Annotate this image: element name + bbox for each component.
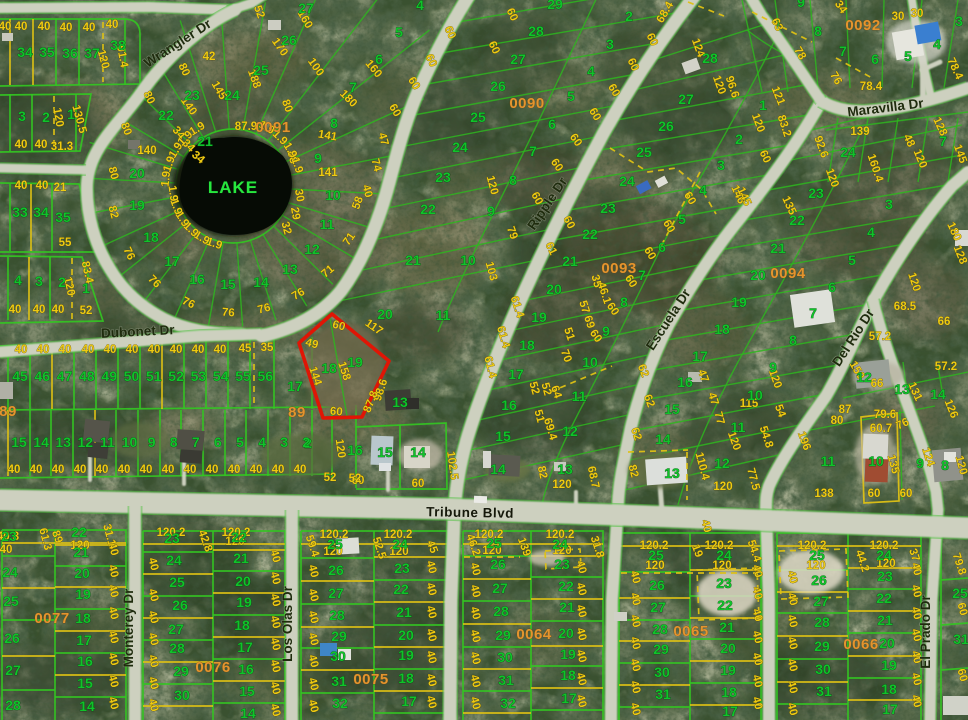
- svg-text:30: 30: [892, 11, 905, 23]
- svg-text:22: 22: [158, 107, 174, 123]
- svg-text:28: 28: [493, 603, 509, 619]
- svg-text:22: 22: [393, 581, 409, 597]
- svg-text:23: 23: [716, 575, 732, 591]
- svg-text:40: 40: [184, 464, 197, 476]
- svg-text:19: 19: [129, 197, 145, 213]
- svg-text:29: 29: [547, 0, 563, 12]
- svg-text:138: 138: [814, 488, 834, 500]
- svg-text:40: 40: [140, 464, 153, 476]
- svg-text:25: 25: [169, 574, 185, 590]
- svg-text:27: 27: [813, 593, 829, 609]
- svg-text:24: 24: [716, 547, 732, 563]
- svg-text:40: 40: [170, 344, 183, 356]
- svg-text:5: 5: [567, 88, 575, 104]
- svg-text:7: 7: [939, 133, 947, 149]
- svg-text:27: 27: [5, 662, 21, 678]
- svg-text:20: 20: [720, 640, 736, 656]
- svg-text:40: 40: [8, 464, 21, 476]
- svg-text:40: 40: [36, 180, 49, 192]
- svg-text:6: 6: [871, 51, 879, 67]
- svg-text:14: 14: [490, 461, 506, 477]
- svg-text:27: 27: [168, 621, 184, 637]
- svg-text:31: 31: [498, 672, 514, 688]
- svg-text:28: 28: [329, 607, 345, 623]
- svg-text:15: 15: [377, 444, 393, 460]
- svg-text:26: 26: [172, 597, 188, 613]
- svg-text:60.7: 60.7: [870, 423, 892, 435]
- svg-text:24: 24: [619, 173, 635, 189]
- svg-text:4: 4: [14, 272, 22, 288]
- svg-text:20: 20: [377, 306, 393, 322]
- svg-text:18: 18: [714, 321, 730, 337]
- svg-text:3: 3: [885, 196, 893, 212]
- svg-text:22: 22: [231, 529, 247, 545]
- svg-text:11: 11: [100, 434, 115, 450]
- svg-text:29: 29: [495, 627, 511, 643]
- svg-text:15: 15: [11, 434, 27, 450]
- svg-text:16: 16: [238, 661, 254, 677]
- svg-text:25: 25: [470, 109, 486, 125]
- svg-text:17: 17: [882, 701, 898, 717]
- svg-text:29: 29: [288, 206, 302, 221]
- svg-text:40: 40: [33, 304, 46, 316]
- svg-text:5: 5: [848, 252, 856, 268]
- svg-text:22: 22: [789, 212, 805, 228]
- svg-text:23: 23: [435, 169, 451, 185]
- svg-text:26: 26: [658, 118, 674, 134]
- svg-text:20: 20: [546, 281, 562, 297]
- svg-text:80: 80: [831, 415, 844, 427]
- svg-text:30: 30: [815, 661, 831, 677]
- svg-text:21: 21: [562, 253, 578, 269]
- svg-text:120: 120: [713, 481, 732, 493]
- svg-text:11: 11: [731, 419, 746, 435]
- svg-text:16: 16: [677, 374, 693, 390]
- svg-text:6: 6: [214, 434, 222, 450]
- svg-text:40: 40: [0, 21, 11, 33]
- svg-text:19: 19: [881, 657, 897, 673]
- svg-text:38: 38: [110, 37, 126, 53]
- svg-text:2: 2: [735, 131, 743, 147]
- svg-text:7: 7: [529, 143, 537, 159]
- svg-text:21: 21: [396, 604, 412, 620]
- svg-text:51: 51: [146, 368, 162, 384]
- svg-text:7: 7: [839, 43, 847, 59]
- svg-text:40: 40: [118, 464, 131, 476]
- svg-text:8: 8: [789, 332, 797, 348]
- svg-text:7: 7: [809, 305, 817, 321]
- svg-text:56: 56: [258, 368, 274, 384]
- svg-text:26: 26: [4, 630, 20, 646]
- svg-text:4: 4: [416, 0, 424, 13]
- svg-text:9: 9: [487, 203, 495, 219]
- svg-text:25: 25: [636, 144, 652, 160]
- svg-text:40: 40: [35, 139, 48, 151]
- svg-text:6: 6: [548, 116, 556, 132]
- svg-text:1: 1: [67, 106, 75, 122]
- svg-text:5: 5: [395, 24, 403, 40]
- svg-text:28: 28: [5, 697, 21, 713]
- svg-text:78.4: 78.4: [860, 81, 883, 93]
- svg-text:49: 49: [101, 368, 117, 384]
- svg-text:29: 29: [331, 628, 347, 644]
- svg-text:21: 21: [54, 182, 67, 194]
- svg-text:14: 14: [253, 274, 269, 290]
- svg-text:37: 37: [84, 45, 100, 61]
- svg-text:31: 31: [816, 683, 832, 699]
- svg-text:0092: 0092: [845, 17, 880, 34]
- svg-text:52: 52: [349, 473, 362, 485]
- svg-text:22: 22: [876, 590, 892, 606]
- svg-text:25: 25: [648, 547, 664, 563]
- svg-text:25: 25: [3, 593, 19, 609]
- svg-text:48: 48: [79, 368, 95, 384]
- svg-text:8: 8: [509, 172, 517, 188]
- svg-text:40: 40: [162, 464, 175, 476]
- svg-text:40: 40: [38, 21, 51, 33]
- svg-text:40: 40: [104, 344, 117, 356]
- svg-text:0091: 0091: [255, 119, 290, 136]
- svg-text:40: 40: [15, 344, 28, 356]
- svg-text:35: 35: [55, 209, 71, 225]
- svg-text:57.2: 57.2: [869, 331, 891, 343]
- svg-text:27: 27: [650, 599, 666, 615]
- svg-text:8: 8: [330, 115, 338, 131]
- svg-text:40: 40: [0, 544, 12, 556]
- svg-text:21: 21: [197, 133, 213, 149]
- svg-text:68.5: 68.5: [894, 301, 917, 313]
- svg-text:21: 21: [73, 544, 89, 560]
- svg-text:6: 6: [828, 279, 836, 295]
- svg-text:12: 12: [304, 241, 320, 257]
- svg-text:40: 40: [82, 344, 95, 356]
- svg-text:0077: 0077: [34, 610, 69, 627]
- svg-text:30: 30: [330, 648, 346, 664]
- svg-text:6: 6: [375, 51, 383, 67]
- svg-text:139: 139: [850, 126, 869, 138]
- svg-text:10: 10: [122, 434, 138, 450]
- svg-text:5: 5: [678, 211, 686, 227]
- svg-text:11: 11: [436, 307, 451, 323]
- svg-text:40: 40: [96, 464, 109, 476]
- svg-text:20: 20: [398, 627, 414, 643]
- svg-text:52: 52: [168, 368, 184, 384]
- svg-text:40: 40: [9, 304, 22, 316]
- svg-text:76: 76: [221, 306, 235, 319]
- svg-text:55: 55: [59, 237, 72, 249]
- svg-text:18: 18: [560, 667, 576, 683]
- svg-text:3: 3: [606, 36, 614, 52]
- svg-text:13: 13: [392, 394, 408, 410]
- svg-text:9: 9: [769, 359, 777, 375]
- svg-text:19: 19: [731, 294, 747, 310]
- svg-text:18: 18: [75, 610, 91, 626]
- svg-text:15: 15: [495, 428, 511, 444]
- svg-text:9: 9: [916, 455, 924, 471]
- svg-text:33: 33: [12, 204, 28, 220]
- svg-text:18: 18: [143, 229, 159, 245]
- svg-text:13: 13: [664, 465, 680, 481]
- svg-text:40: 40: [192, 344, 205, 356]
- svg-text:31.3: 31.3: [51, 141, 73, 153]
- svg-text:19: 19: [398, 647, 414, 663]
- svg-text:16: 16: [189, 271, 205, 287]
- svg-text:40: 40: [272, 464, 285, 476]
- svg-text:40: 40: [52, 304, 65, 316]
- svg-text:12: 12: [78, 434, 94, 450]
- svg-text:18: 18: [519, 337, 535, 353]
- svg-text:10: 10: [460, 252, 476, 268]
- svg-text:17: 17: [164, 253, 180, 269]
- svg-text:8: 8: [170, 434, 178, 450]
- svg-text:23: 23: [600, 200, 616, 216]
- svg-text:7: 7: [192, 434, 200, 450]
- svg-text:25: 25: [486, 535, 502, 551]
- svg-text:19: 19: [75, 586, 91, 602]
- svg-text:23: 23: [877, 568, 893, 584]
- svg-text:19: 19: [560, 646, 576, 662]
- svg-text:40: 40: [228, 464, 241, 476]
- svg-text:18: 18: [398, 670, 414, 686]
- svg-text:18: 18: [881, 681, 897, 697]
- svg-text:31: 31: [953, 631, 968, 647]
- svg-text:27: 27: [328, 585, 344, 601]
- svg-text:23: 23: [808, 185, 824, 201]
- svg-text:14: 14: [930, 386, 946, 402]
- svg-text:26: 26: [281, 32, 297, 48]
- svg-text:20: 20: [750, 267, 766, 283]
- svg-text:0064: 0064: [516, 626, 552, 643]
- svg-text:54: 54: [213, 368, 229, 384]
- svg-text:14: 14: [33, 434, 49, 450]
- svg-text:21: 21: [770, 240, 786, 256]
- svg-text:17: 17: [76, 632, 92, 648]
- svg-text:26: 26: [490, 78, 506, 94]
- svg-text:47: 47: [57, 368, 73, 384]
- svg-text:35: 35: [39, 44, 55, 60]
- svg-text:26: 26: [811, 572, 827, 588]
- svg-text:40: 40: [106, 19, 119, 31]
- svg-text:10: 10: [747, 387, 763, 403]
- svg-text:13: 13: [557, 461, 573, 477]
- svg-text:40: 40: [83, 22, 96, 34]
- svg-text:12: 12: [856, 369, 872, 385]
- svg-text:52: 52: [324, 472, 337, 484]
- svg-text:89: 89: [288, 404, 306, 421]
- svg-text:30: 30: [174, 687, 190, 703]
- svg-text:19: 19: [236, 594, 252, 610]
- svg-text:1: 1: [82, 280, 90, 296]
- svg-text:LAKE: LAKE: [208, 178, 258, 197]
- svg-text:28: 28: [702, 50, 718, 66]
- svg-text:27: 27: [298, 0, 314, 16]
- svg-text:79.6: 79.6: [874, 409, 896, 421]
- svg-text:24: 24: [876, 547, 892, 563]
- svg-text:5: 5: [904, 48, 912, 64]
- svg-text:10: 10: [582, 354, 598, 370]
- svg-text:21: 21: [877, 612, 893, 628]
- svg-text:25: 25: [327, 536, 343, 552]
- svg-text:21: 21: [233, 550, 249, 566]
- svg-text:18: 18: [321, 360, 337, 376]
- svg-text:29: 29: [173, 663, 189, 679]
- svg-text:17: 17: [692, 348, 708, 364]
- svg-text:52: 52: [80, 305, 93, 317]
- svg-text:29: 29: [814, 638, 830, 654]
- svg-text:22: 22: [717, 597, 733, 613]
- svg-text:8: 8: [941, 457, 949, 473]
- svg-text:66: 66: [871, 378, 884, 390]
- svg-text:9: 9: [602, 323, 610, 339]
- svg-text:14: 14: [79, 698, 95, 714]
- svg-text:40: 40: [74, 464, 87, 476]
- svg-text:46: 46: [35, 368, 51, 384]
- svg-text:23: 23: [184, 87, 200, 103]
- svg-text:17: 17: [561, 690, 577, 706]
- svg-text:9: 9: [314, 150, 322, 166]
- svg-text:2: 2: [625, 8, 633, 24]
- svg-text:2: 2: [42, 109, 50, 125]
- svg-text:16: 16: [501, 397, 517, 413]
- svg-text:22: 22: [71, 524, 87, 540]
- svg-text:17: 17: [508, 366, 524, 382]
- svg-text:30: 30: [911, 8, 924, 20]
- svg-text:89: 89: [0, 403, 17, 420]
- svg-text:El Prado Dr: El Prado Dr: [918, 595, 933, 669]
- svg-text:14: 14: [410, 444, 426, 460]
- svg-text:40: 40: [52, 464, 65, 476]
- svg-text:31: 31: [331, 673, 347, 689]
- svg-text:66: 66: [938, 316, 951, 328]
- svg-text:Los Olas Dr: Los Olas Dr: [280, 585, 295, 662]
- svg-text:40: 40: [60, 22, 73, 34]
- svg-text:15: 15: [664, 401, 680, 417]
- svg-text:40: 40: [15, 180, 28, 192]
- svg-text:28: 28: [169, 640, 185, 656]
- svg-text:4: 4: [587, 63, 595, 79]
- svg-text:28: 28: [528, 23, 544, 39]
- svg-text:24: 24: [552, 536, 568, 552]
- svg-text:8: 8: [620, 294, 628, 310]
- svg-text:40: 40: [15, 21, 28, 33]
- svg-text:20: 20: [235, 573, 251, 589]
- svg-text:27: 27: [492, 580, 508, 596]
- svg-text:18: 18: [234, 617, 250, 633]
- svg-text:21: 21: [405, 252, 421, 268]
- svg-text:42: 42: [203, 51, 216, 63]
- svg-text:57.2: 57.2: [935, 361, 957, 373]
- svg-text:15: 15: [220, 276, 236, 292]
- svg-text:13: 13: [282, 261, 298, 277]
- svg-text:1: 1: [759, 97, 767, 113]
- svg-text:26: 26: [328, 562, 344, 578]
- svg-text:22: 22: [558, 578, 574, 594]
- svg-text:23: 23: [164, 530, 180, 546]
- svg-text:22: 22: [582, 226, 598, 242]
- svg-text:0076: 0076: [195, 659, 230, 676]
- svg-text:13: 13: [894, 381, 910, 397]
- svg-text:9: 9: [148, 434, 156, 450]
- svg-text:Monterey Dr: Monterey Dr: [121, 588, 136, 668]
- svg-text:25: 25: [809, 547, 825, 563]
- svg-text:29: 29: [653, 641, 669, 657]
- svg-text:60: 60: [900, 488, 913, 500]
- svg-text:40: 40: [37, 344, 50, 356]
- svg-text:15: 15: [77, 675, 93, 691]
- svg-text:17: 17: [237, 639, 253, 655]
- svg-text:36: 36: [62, 45, 78, 61]
- svg-text:3: 3: [18, 108, 26, 124]
- svg-text:40: 40: [294, 464, 307, 476]
- svg-text:40: 40: [30, 464, 43, 476]
- svg-text:140: 140: [137, 145, 156, 157]
- svg-text:20: 20: [879, 635, 895, 651]
- svg-text:55: 55: [235, 368, 251, 384]
- svg-text:28: 28: [652, 621, 668, 637]
- svg-text:40: 40: [15, 139, 28, 151]
- svg-text:23: 23: [394, 560, 410, 576]
- svg-text:3: 3: [280, 434, 288, 450]
- svg-text:5: 5: [236, 434, 244, 450]
- svg-text:6: 6: [658, 239, 666, 255]
- svg-text:50: 50: [124, 368, 140, 384]
- svg-text:11: 11: [572, 388, 587, 404]
- svg-text:17: 17: [401, 693, 417, 709]
- svg-text:Tribune Blvd: Tribune Blvd: [426, 504, 514, 521]
- svg-text:14: 14: [655, 431, 671, 447]
- svg-text:8: 8: [814, 23, 822, 39]
- svg-text:17: 17: [722, 703, 738, 719]
- svg-text:4: 4: [933, 36, 941, 52]
- svg-text:11: 11: [821, 453, 836, 469]
- svg-text:11: 11: [320, 216, 335, 232]
- svg-text:16: 16: [347, 442, 363, 458]
- svg-text:21: 21: [559, 599, 575, 615]
- svg-text:27: 27: [510, 51, 526, 67]
- svg-text:0075: 0075: [353, 671, 388, 688]
- svg-text:24: 24: [166, 552, 182, 568]
- svg-text:4: 4: [867, 224, 875, 240]
- svg-text:28: 28: [814, 614, 830, 630]
- svg-text:20: 20: [74, 565, 90, 581]
- svg-text:40: 40: [206, 464, 219, 476]
- svg-text:60: 60: [868, 488, 881, 500]
- svg-text:26: 26: [649, 577, 665, 593]
- svg-text:30: 30: [497, 649, 513, 665]
- svg-text:3: 3: [35, 273, 43, 289]
- svg-text:40: 40: [126, 344, 139, 356]
- svg-text:0090: 0090: [509, 95, 544, 112]
- svg-text:2: 2: [58, 274, 66, 290]
- svg-text:25: 25: [952, 585, 968, 601]
- svg-text:0093: 0093: [601, 260, 636, 277]
- svg-text:24: 24: [2, 564, 18, 580]
- svg-text:53: 53: [191, 368, 207, 384]
- svg-text:23: 23: [1, 528, 17, 544]
- svg-text:19: 19: [347, 354, 363, 370]
- svg-text:141: 141: [318, 167, 338, 179]
- svg-text:26: 26: [490, 556, 506, 572]
- svg-text:35: 35: [261, 342, 274, 354]
- svg-text:45: 45: [12, 368, 28, 384]
- svg-text:4: 4: [258, 434, 266, 450]
- svg-text:12: 12: [714, 455, 730, 471]
- svg-text:30: 30: [654, 664, 670, 680]
- svg-text:4: 4: [699, 182, 707, 198]
- svg-text:13: 13: [55, 434, 71, 450]
- svg-text:20: 20: [129, 165, 145, 181]
- svg-text:7: 7: [349, 79, 357, 95]
